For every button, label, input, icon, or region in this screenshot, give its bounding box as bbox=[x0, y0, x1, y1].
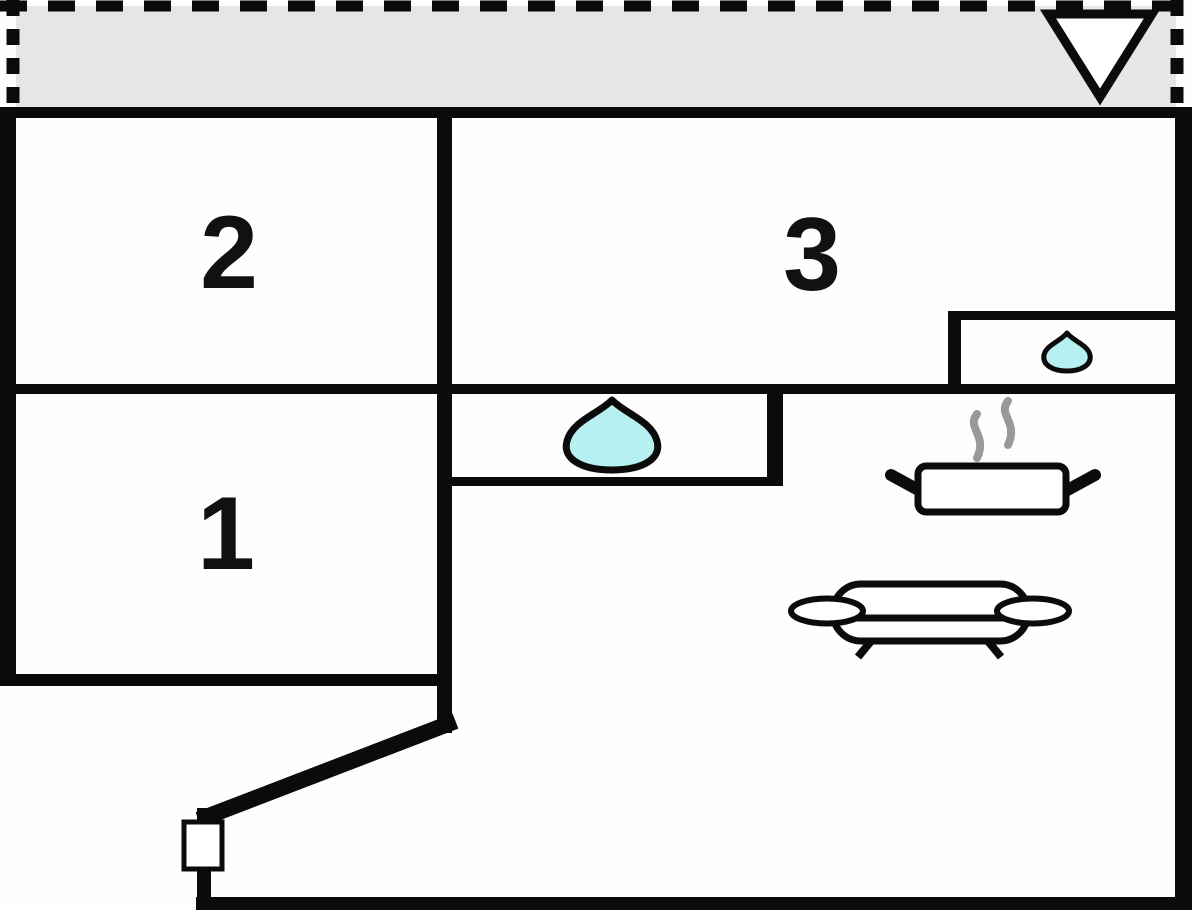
wall-bottom bbox=[196, 897, 1192, 910]
pot-body bbox=[918, 466, 1066, 512]
water-drop-icon-sink bbox=[1044, 333, 1090, 371]
room-label-2: 2 bbox=[200, 201, 258, 305]
wall-alcove-top bbox=[948, 311, 1175, 320]
steam-icon bbox=[1005, 401, 1011, 445]
wall-center-vertical bbox=[437, 107, 452, 733]
room-label-3: 3 bbox=[783, 203, 841, 307]
wall-horizontal-divider bbox=[0, 384, 1175, 394]
wall-room1-bottom bbox=[0, 674, 452, 686]
wall-bath-bottom bbox=[445, 477, 783, 486]
stove-icon bbox=[891, 401, 1095, 512]
wall-door-stub-bottom bbox=[197, 866, 211, 910]
terrace-area bbox=[0, 0, 1192, 107]
wall-right bbox=[1175, 107, 1192, 910]
steam-icon bbox=[974, 414, 980, 458]
wall-alcove-left bbox=[948, 311, 961, 394]
floor-plan: 2 3 1 bbox=[0, 0, 1192, 910]
wall-diagonal bbox=[206, 724, 448, 817]
wall-left bbox=[0, 107, 16, 686]
sofa-icon bbox=[791, 584, 1069, 657]
sofa-armrest-left bbox=[791, 599, 863, 624]
water-drop-icon-bath bbox=[566, 400, 658, 470]
wall-bath-right bbox=[767, 385, 783, 485]
wall-top bbox=[0, 107, 1192, 118]
floor-plan-drawing bbox=[0, 0, 1192, 910]
door-marker bbox=[184, 822, 222, 869]
terrace-floor bbox=[16, 6, 1176, 107]
room-label-1: 1 bbox=[197, 482, 255, 586]
sofa-armrest-right bbox=[997, 599, 1069, 624]
